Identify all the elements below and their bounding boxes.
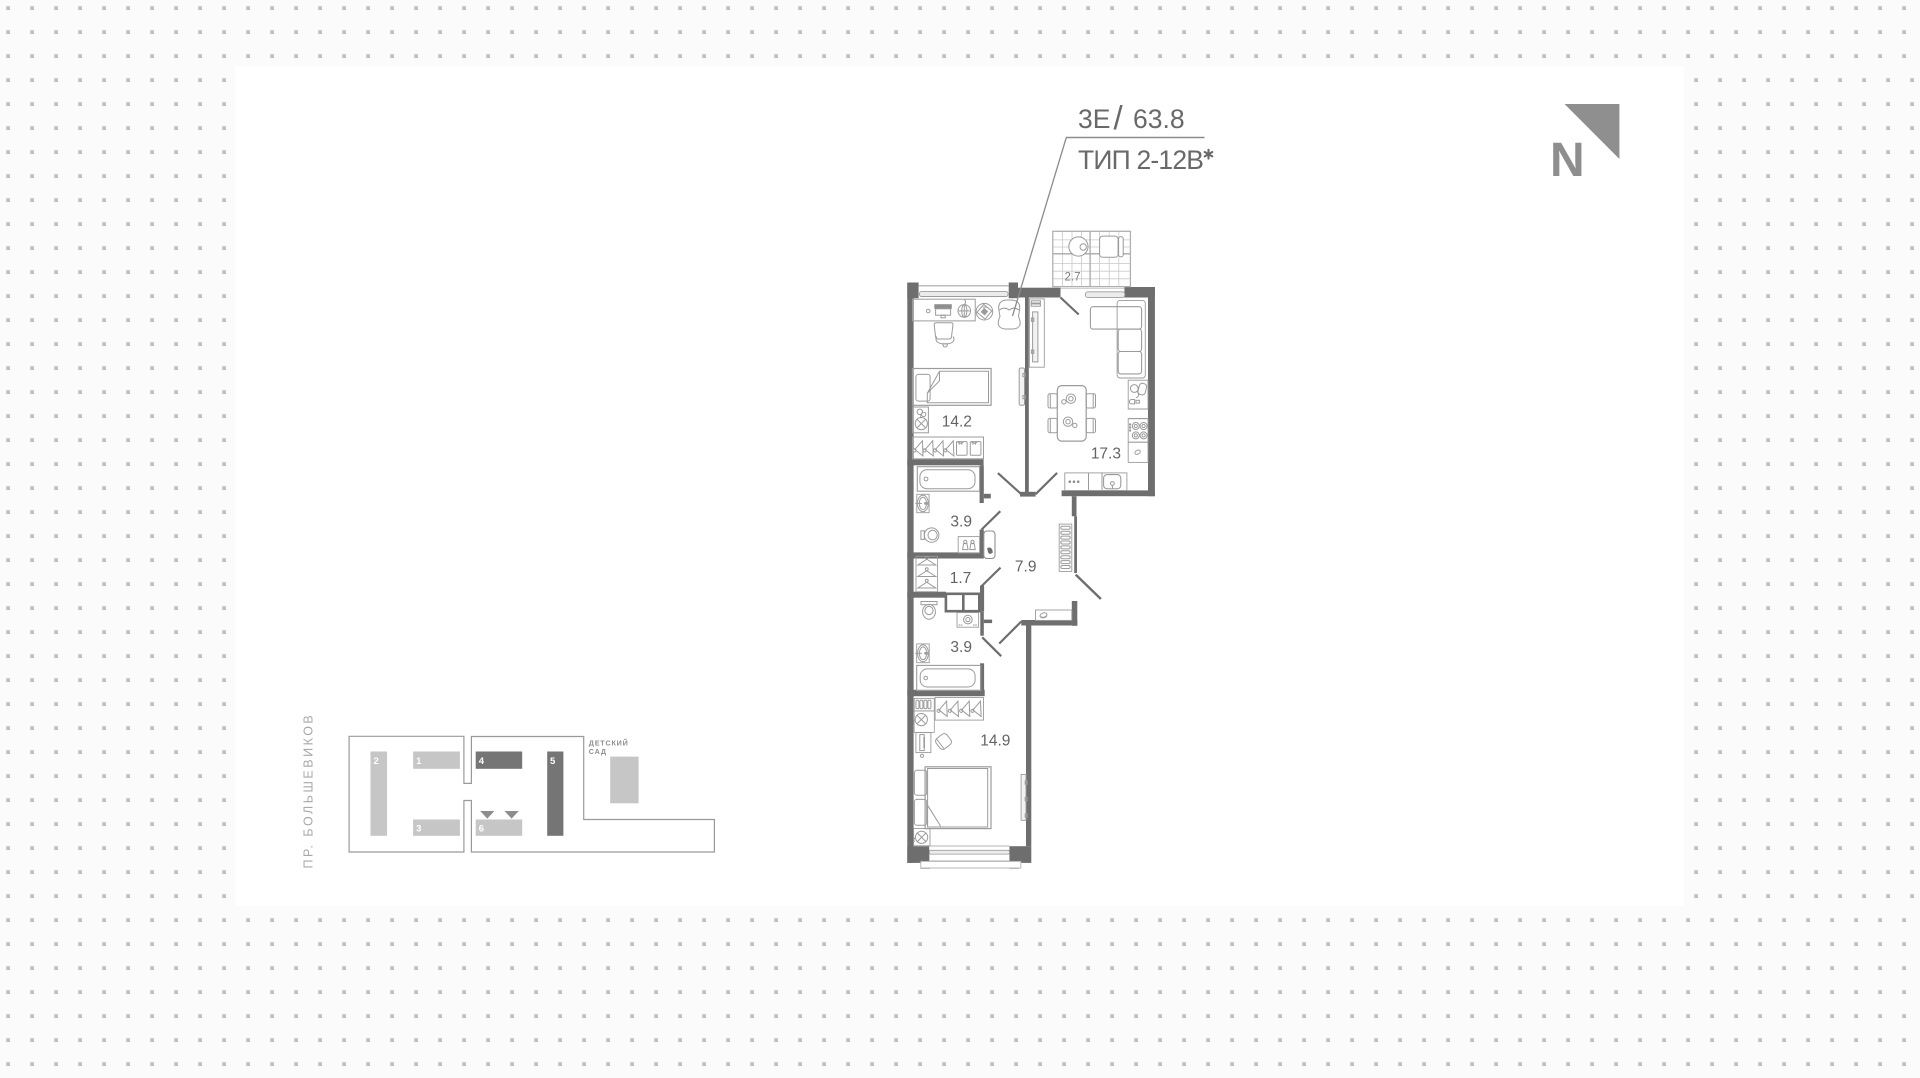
svg-text:3: 3 [416, 824, 421, 835]
svg-text:1: 1 [416, 756, 422, 767]
svg-text:/: / [1114, 99, 1124, 136]
svg-text:5: 5 [550, 756, 556, 767]
svg-text:3.9: 3.9 [950, 513, 972, 530]
svg-text:14.2: 14.2 [942, 414, 972, 431]
svg-text:14.9: 14.9 [980, 733, 1010, 750]
svg-text:7.9: 7.9 [1015, 559, 1037, 576]
svg-text:N: N [1550, 134, 1585, 187]
svg-text:3Е: 3Е [1078, 104, 1110, 134]
svg-text:63.8: 63.8 [1133, 104, 1185, 134]
svg-text:1.7: 1.7 [950, 570, 972, 587]
svg-text:6: 6 [479, 824, 484, 835]
svg-text:2.7: 2.7 [1065, 271, 1081, 283]
svg-text:2: 2 [374, 756, 379, 767]
svg-text:17.3: 17.3 [1091, 445, 1121, 462]
svg-text:ПР. БОЛЬШЕВИКОВ: ПР. БОЛЬШЕВИКОВ [302, 713, 316, 869]
svg-text:САД: САД [589, 747, 607, 756]
svg-text:3.9: 3.9 [950, 639, 972, 656]
svg-text:4: 4 [479, 756, 485, 767]
svg-text:ТИП 2-12В: ТИП 2-12В [1078, 145, 1203, 175]
